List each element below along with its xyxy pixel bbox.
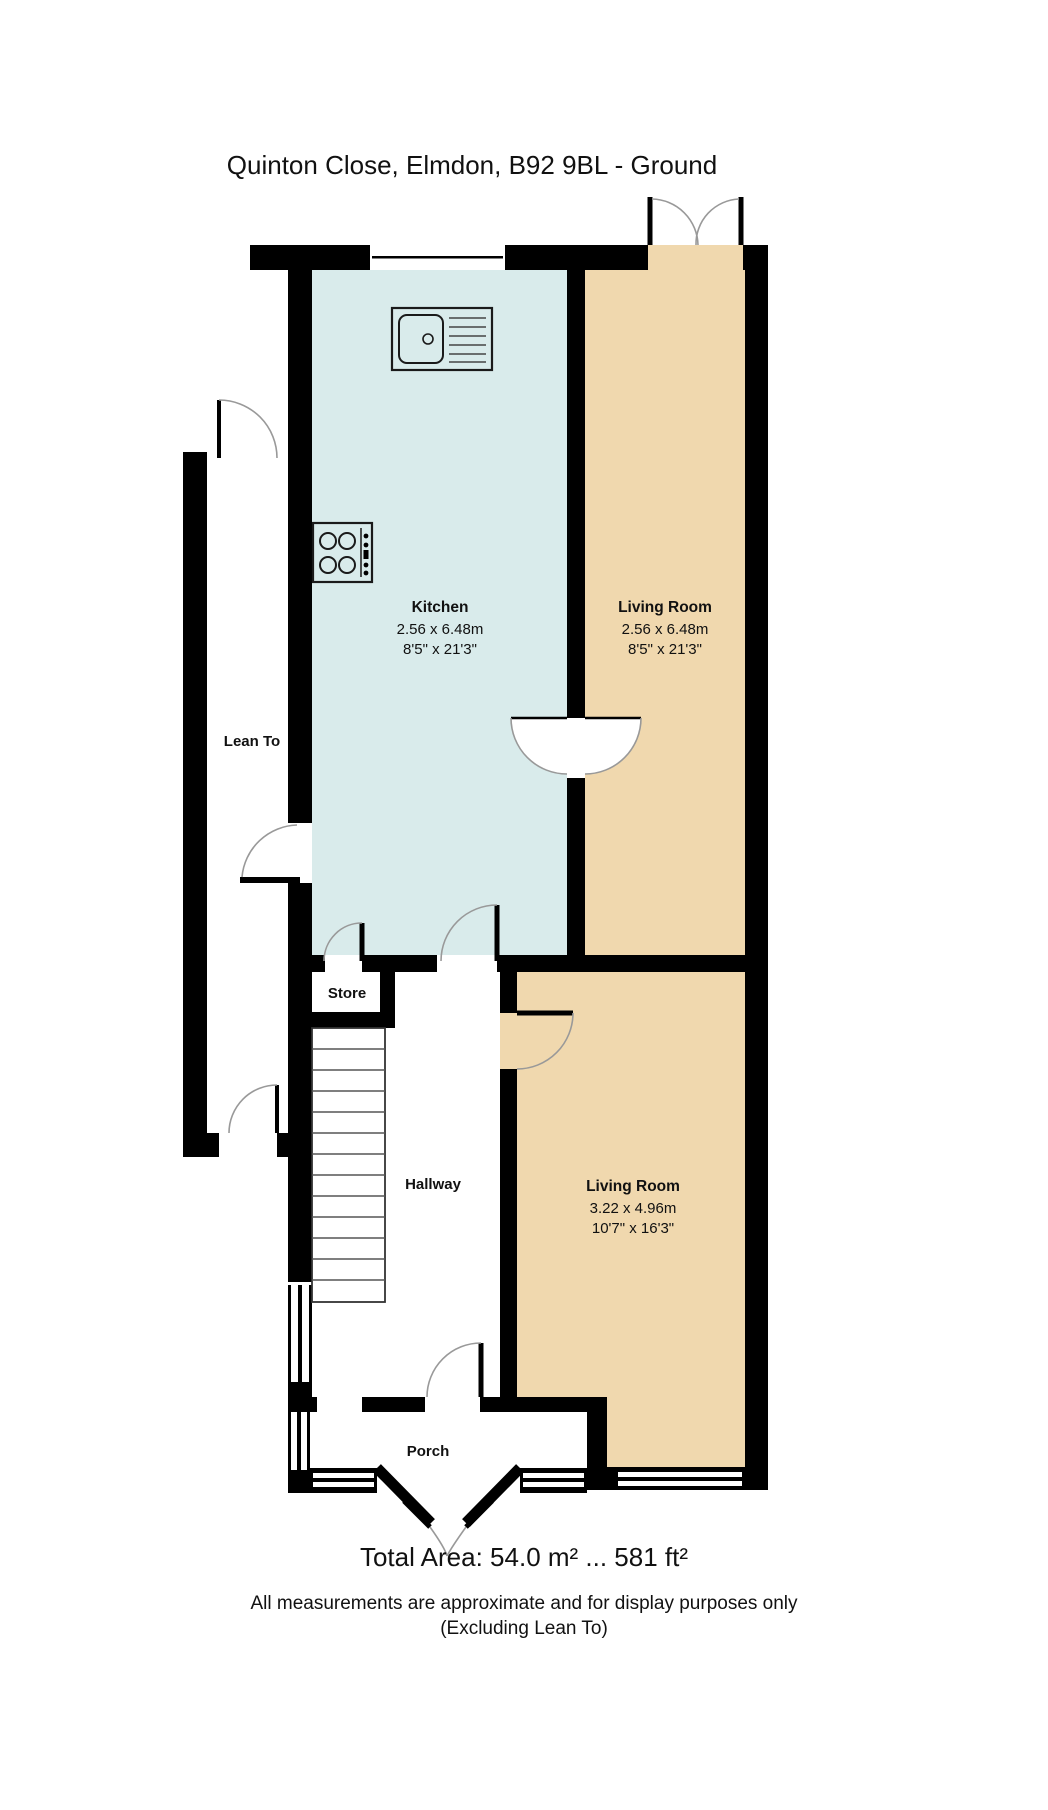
- store-south-wall: [312, 1012, 395, 1028]
- top-wall-west-stub: [250, 245, 288, 270]
- store-label: Store: [328, 985, 366, 1002]
- page-title: Quinton Close, Elmdon, B92 9BL - Ground: [227, 150, 717, 180]
- west-corner-block-2: [288, 1470, 310, 1493]
- living-front-dims-imperial: 8'5" x 21'3": [628, 641, 702, 658]
- leanto-kitchen-door-icon: [240, 825, 300, 880]
- kitchen-living-wall-upper: [567, 270, 585, 718]
- hallway-label: Hallway: [405, 1176, 462, 1193]
- kitchen-label: Kitchen: [412, 599, 469, 616]
- west-corner-block-1: [288, 1382, 312, 1412]
- hall-east-wall-lower: [500, 1069, 517, 1412]
- leanto-west-wall: [183, 452, 207, 1155]
- mid-wall-left: [288, 955, 325, 972]
- porch-southwest-window-icon: [310, 1468, 377, 1493]
- living-front-label: Living Room: [618, 599, 712, 616]
- porch-west-window-icon: [288, 1412, 310, 1470]
- kitchen-window-icon: [372, 247, 503, 268]
- porch-top-wall-right: [480, 1397, 607, 1412]
- hallway-west-window-icon: [288, 1285, 312, 1382]
- kitchen-west-wall-lower: [288, 883, 312, 955]
- mid-wall-center: [362, 955, 437, 972]
- stairs-west-wall: [288, 972, 312, 1282]
- store-east-wall: [380, 972, 395, 1012]
- living-rear-door-threshold: [500, 1013, 517, 1069]
- porch-hall-door-icon: [427, 1343, 481, 1397]
- disclaimer-line2: (Excluding Lean To): [440, 1618, 608, 1639]
- total-area-text: Total Area: 54.0 m² ... 581 ft²: [360, 1542, 688, 1572]
- kitchen-living-wall-lower: [567, 778, 585, 955]
- front-door-threshold: [648, 245, 743, 271]
- leanto-south-wall-left: [183, 1133, 219, 1157]
- floorplan-canvas: Quinton Close, Elmdon, B92 9BL - Ground: [0, 0, 1048, 1810]
- kitchen-dims-metric: 2.56 x 6.48m: [397, 621, 484, 638]
- leanto-north-door-icon: [219, 400, 277, 458]
- living-rear-label: Living Room: [586, 1178, 680, 1195]
- right-wall: [745, 245, 768, 1490]
- floorplan-page: Quinton Close, Elmdon, B92 9BL - Ground: [0, 0, 1048, 1810]
- kitchen-west-wall-upper: [288, 270, 312, 823]
- leanto-south-door-icon: [229, 1085, 277, 1133]
- disclaimer-line1: All measurements are approximate and for…: [250, 1593, 798, 1614]
- top-wall-left: [288, 245, 370, 270]
- porch-southeast-window-icon: [520, 1468, 587, 1493]
- front-double-door-icon: [650, 197, 741, 245]
- staircase: [312, 1028, 385, 1302]
- porch-east-wall: [587, 1412, 607, 1490]
- porch-top-wall-mid: [362, 1397, 425, 1412]
- kitchen-dims-imperial: 8'5" x 21'3": [403, 641, 477, 658]
- living-rear-dims-imperial: 10'7" x 16'3": [592, 1220, 674, 1237]
- living-rear-bottom-wall: [607, 1467, 768, 1490]
- hall-east-wall-upper: [500, 972, 517, 1013]
- top-wall-mid: [505, 245, 648, 270]
- living-front-dims-metric: 2.56 x 6.48m: [622, 621, 709, 638]
- leanto-label: Lean To: [224, 733, 280, 750]
- living-rear-dims-metric: 3.22 x 4.96m: [590, 1200, 677, 1217]
- porch-label: Porch: [407, 1443, 450, 1460]
- mid-wall-right: [497, 955, 768, 972]
